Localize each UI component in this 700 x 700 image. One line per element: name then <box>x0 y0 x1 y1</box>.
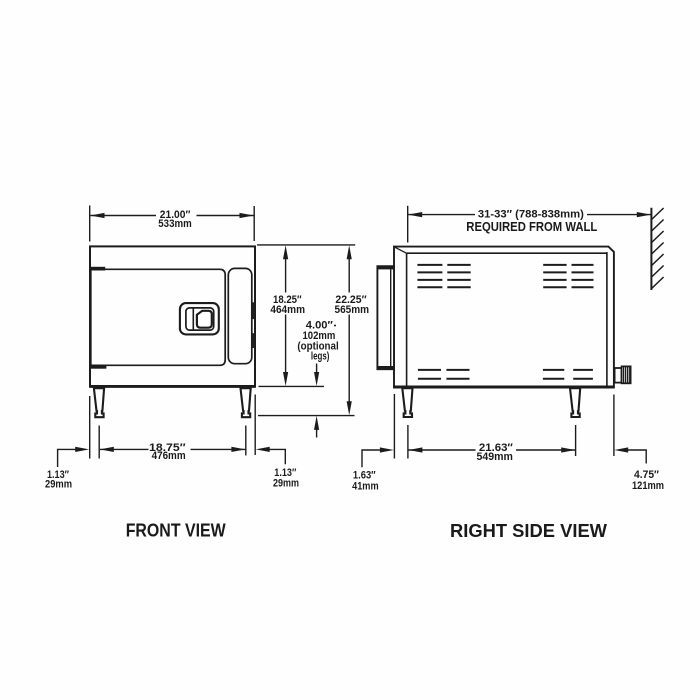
svg-text:29mm: 29mm <box>45 479 72 491</box>
svg-text:464mm: 464mm <box>270 304 305 316</box>
svg-text:41mm: 41mm <box>352 480 379 492</box>
svg-text:476mm: 476mm <box>152 450 186 462</box>
svg-text:121mm: 121mm <box>632 480 664 492</box>
svg-text:FRONT VIEW: FRONT VIEW <box>126 519 226 540</box>
svg-text:29mm: 29mm <box>273 478 299 490</box>
svg-text:RIGHT SIDE VIEW: RIGHT SIDE VIEW <box>450 520 607 541</box>
svg-text:565mm: 565mm <box>335 304 370 316</box>
svg-text:legs): legs) <box>311 351 330 363</box>
svg-text:REQUIRED FROM WALL: REQUIRED FROM WALL <box>466 219 597 234</box>
svg-text:549mm: 549mm <box>477 451 513 463</box>
svg-text:533mm: 533mm <box>158 218 191 230</box>
